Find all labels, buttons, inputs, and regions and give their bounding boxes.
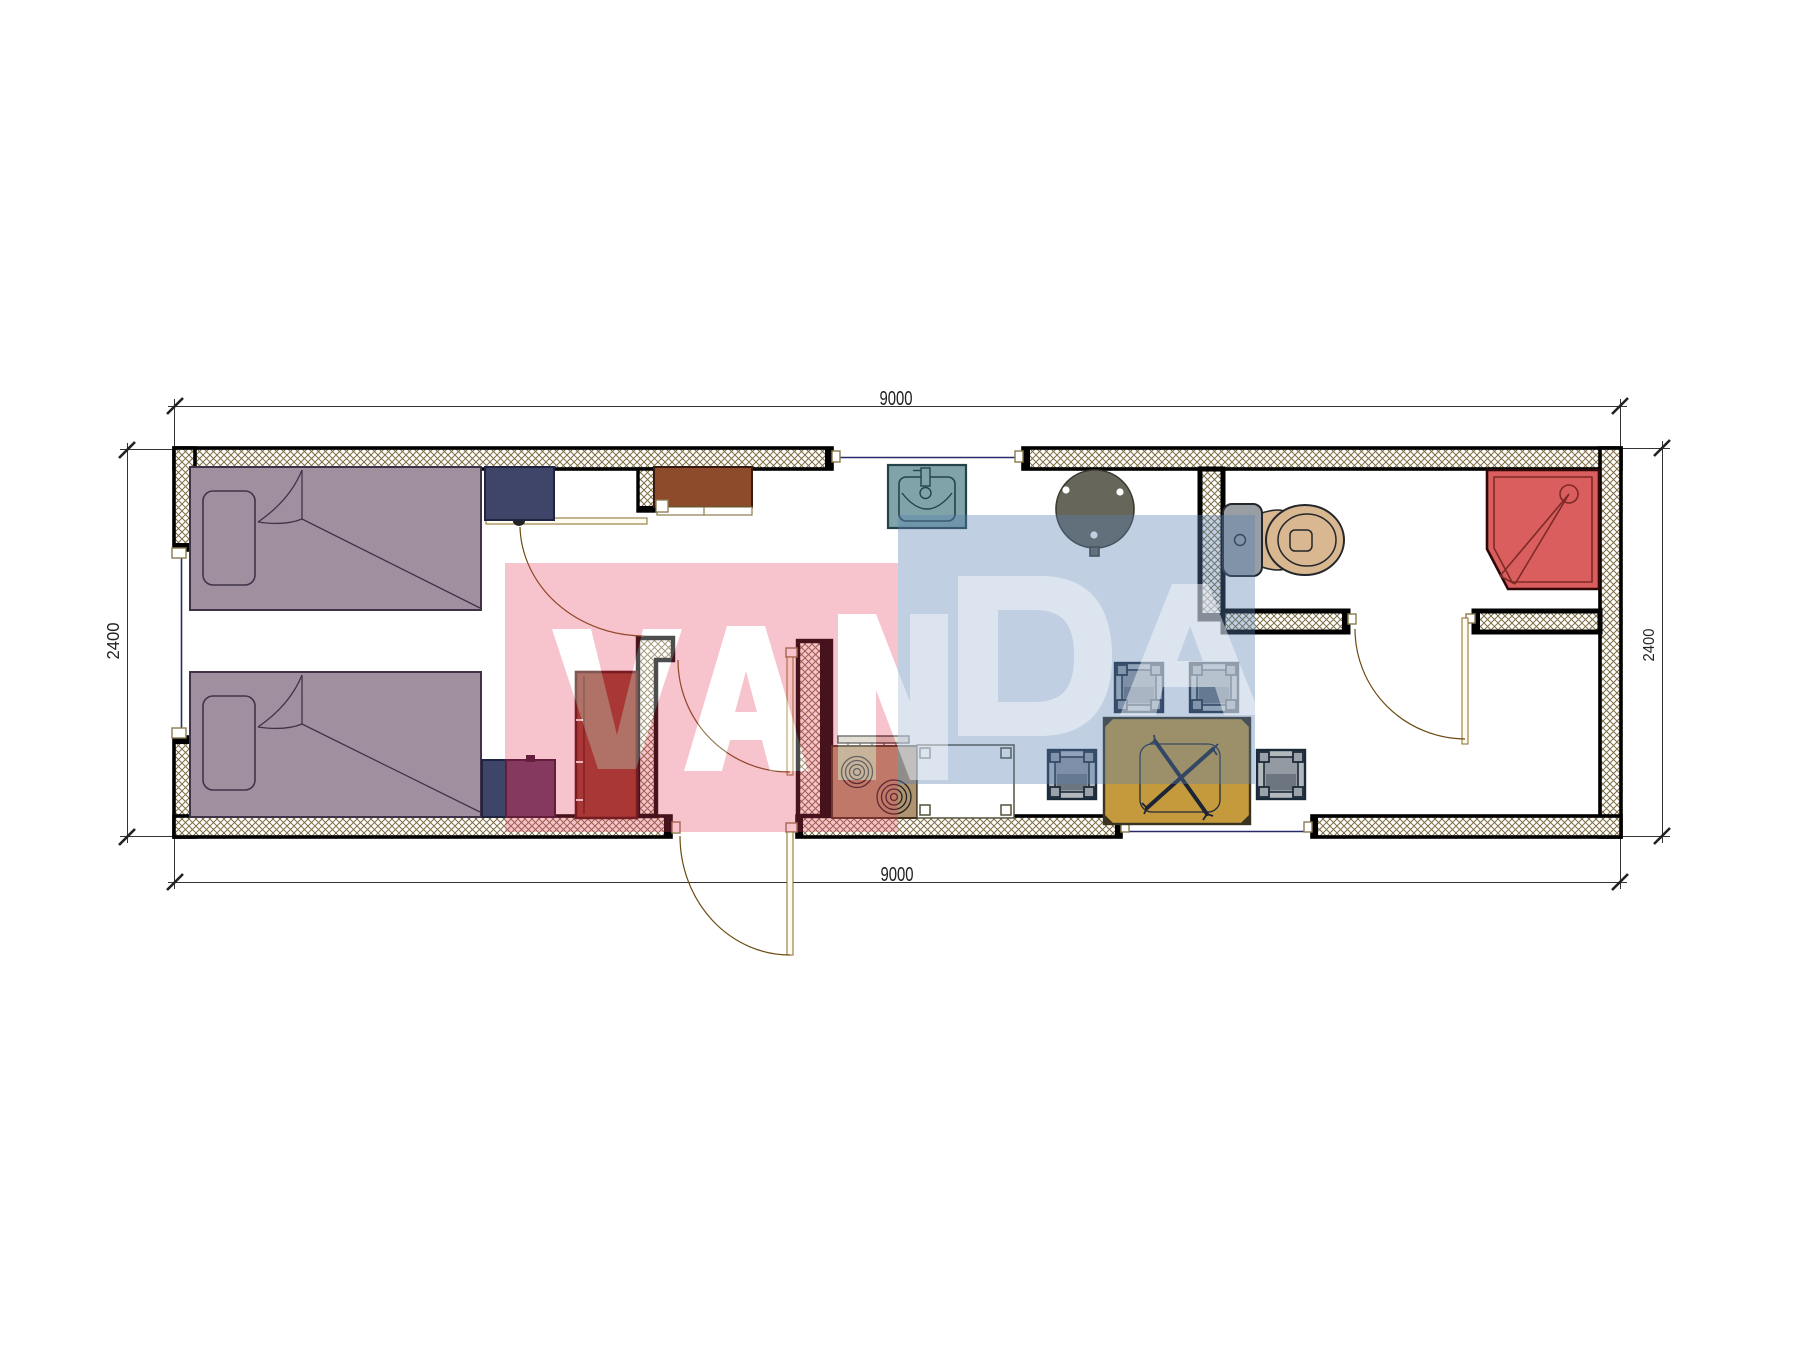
- svg-text:2400: 2400: [1641, 628, 1658, 661]
- svg-text:2400: 2400: [103, 622, 123, 659]
- svg-text:9000: 9000: [880, 388, 913, 410]
- svg-text:9000: 9000: [881, 864, 914, 886]
